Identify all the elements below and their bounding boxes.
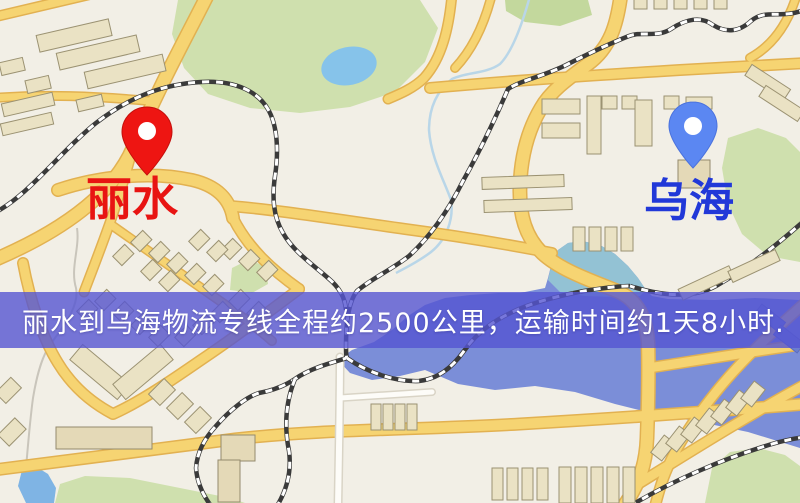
map-view[interactable]: 丽水 乌海 丽水到乌海物流专线全程约2500公里，运输时间约1天8小时. bbox=[0, 0, 800, 503]
lishui-label: 丽水 bbox=[86, 176, 178, 222]
info-banner: 丽水到乌海物流专线全程约2500公里，运输时间约1天8小时. bbox=[0, 292, 800, 348]
lishui-pin-hole bbox=[138, 122, 156, 140]
wuhai-pin-hole bbox=[684, 117, 702, 135]
info-banner-text: 丽水到乌海物流专线全程约2500公里，运输时间约1天8小时. bbox=[0, 301, 785, 340]
map-canvas bbox=[0, 0, 800, 503]
wuhai-label: 乌海 bbox=[644, 178, 734, 223]
